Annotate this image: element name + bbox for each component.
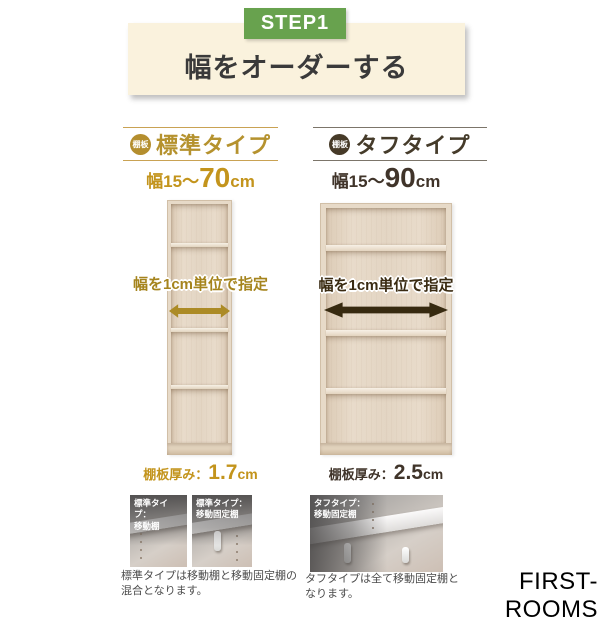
shelf-opening	[326, 336, 446, 388]
thickness-label: 棚板厚み：	[143, 464, 208, 483]
tough-type-header: 棚板 タフタイプ	[313, 127, 487, 161]
shelf-board-badge-icon: 棚板	[130, 134, 151, 155]
thickness-label: 棚板厚み：	[329, 464, 394, 483]
width-arrow-icon	[169, 303, 230, 319]
width-prefix: 幅15〜	[332, 167, 385, 192]
width-value: 70	[199, 162, 230, 194]
shelf-opening	[326, 208, 446, 245]
width-value: 90	[385, 162, 416, 194]
standard-width-range: 幅15〜70cm	[123, 162, 278, 194]
photo-label: タフタイプ： 移動固定棚	[310, 495, 443, 572]
shelf-base	[167, 443, 232, 455]
thickness-unit: cm	[237, 466, 257, 482]
photo-label: 標準タイプ： 移動固定棚	[192, 495, 252, 567]
shelf-opening	[326, 394, 446, 443]
width-unit: cm	[230, 172, 255, 192]
standard-thickness: 棚板厚み：1.7cm	[113, 461, 288, 485]
thickness-value: 2.5	[394, 461, 423, 485]
brand-text: FIRST-ROOMS	[448, 568, 598, 624]
width-arrow-icon	[324, 301, 448, 319]
tough-thickness: 棚板厚み：2.5cm	[306, 461, 466, 485]
step-title: 幅をオーダーする	[185, 46, 409, 85]
standard-caption: 標準タイプは移動棚と移動固定棚の混合となります。	[121, 569, 303, 600]
width-prefix: 幅15〜	[146, 167, 199, 192]
shelf-opening	[171, 204, 228, 243]
standard-type-name: 標準タイプ	[156, 128, 271, 160]
shelf-opening	[171, 332, 228, 385]
step-badge: STEP1	[244, 8, 346, 39]
shelf-base	[320, 443, 452, 455]
standard-type-header: 棚板 標準タイプ	[123, 127, 278, 161]
standard-movable-shelf-photo: 標準タイプ： 移動棚	[130, 495, 187, 567]
standard-fixed-shelf-photo: 標準タイプ： 移動固定棚	[192, 495, 252, 567]
thickness-unit: cm	[423, 466, 443, 482]
standard-width-spec-label: 幅を1cm単位で指定	[113, 273, 288, 294]
tough-type-name: タフタイプ	[355, 128, 470, 160]
photo-label: 標準タイプ： 移動棚	[130, 495, 187, 567]
standard-bookshelf-illustration	[167, 200, 232, 455]
tough-fixed-shelf-photo: タフタイプ： 移動固定棚	[310, 495, 443, 572]
thickness-value: 1.7	[208, 461, 237, 485]
tough-caption: タフタイプは全て移動固定棚となります。	[305, 572, 467, 603]
tough-width-spec-label: 幅を1cm単位で指定	[306, 274, 466, 295]
width-unit: cm	[416, 172, 441, 192]
shelf-opening	[171, 389, 228, 443]
shelf-board-badge-icon: 棚板	[329, 134, 350, 155]
tough-width-range: 幅15〜90cm	[306, 162, 466, 194]
tough-bookshelf-illustration	[320, 203, 452, 455]
